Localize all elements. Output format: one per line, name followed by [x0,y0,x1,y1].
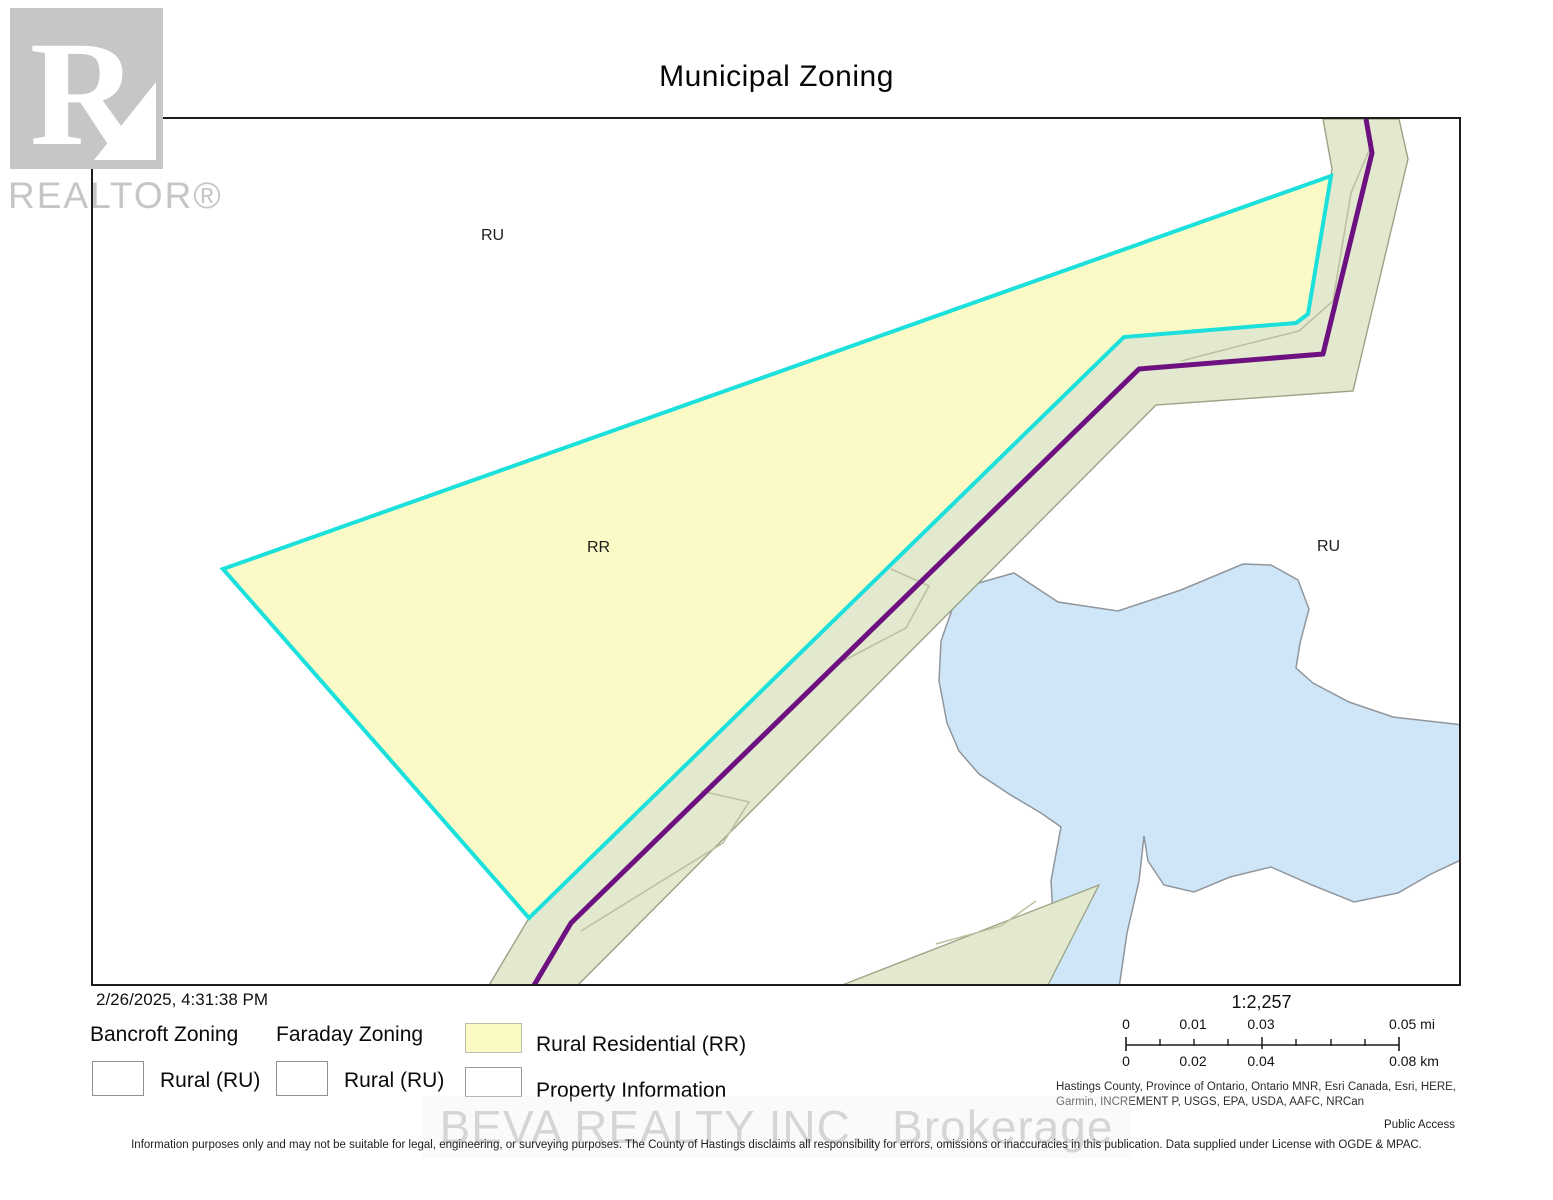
swatch-bancroft-rural [92,1061,144,1096]
zoning-map-canvas: RU RR RU [93,119,1459,984]
map-frame: RU RR RU [91,117,1461,986]
disclaimer-text: Information purposes only and may not be… [131,1139,1422,1151]
zone-label-ru-right: RU [1317,538,1340,555]
realtor-logo-icon: R [10,8,175,178]
scale-km-label-3: 0.08 km [1389,1053,1439,1069]
legend-heading-bancroft: Bancroft Zoning [90,1023,238,1047]
scale-mi-label-3: 0.05 mi [1389,1016,1435,1032]
scale-km-label-1: 0.02 [1179,1053,1206,1069]
scale-mi-label-1: 0.01 [1179,1016,1206,1032]
legend-item-faraday-rural: Rural (RU) [344,1069,444,1093]
realtor-wordmark: REALTOR® [8,175,223,217]
scale-km-label-0: 0 [1122,1053,1130,1069]
page-title: Municipal Zoning [0,60,1553,94]
zone-label-ru-left: RU [481,227,504,244]
swatch-rural-residential [465,1023,522,1053]
scale-bar-icon [1125,1036,1401,1052]
zoning-map-page: Municipal Zoning R REALTOR® [0,0,1553,1200]
swatch-faraday-rural [276,1061,328,1096]
zone-label-rr: RR [587,539,610,556]
scale-ratio: 1:2,257 [1125,992,1398,1013]
public-access-label: Public Access [1384,1119,1455,1131]
legend-heading-faraday: Faraday Zoning [276,1023,423,1047]
legend-item-bancroft-rural: Rural (RU) [160,1069,260,1093]
scale-mi-label-0: 0 [1122,1016,1130,1032]
legend-item-rural-residential: Rural Residential (RR) [536,1033,746,1057]
scale-km-label-2: 0.04 [1247,1053,1274,1069]
realtor-watermark: R REALTOR® [10,8,175,178]
swatch-property-information [465,1067,522,1097]
scale-mi-label-2: 0.03 [1247,1016,1274,1032]
export-timestamp: 2/26/2025, 4:31:38 PM [96,990,268,1010]
